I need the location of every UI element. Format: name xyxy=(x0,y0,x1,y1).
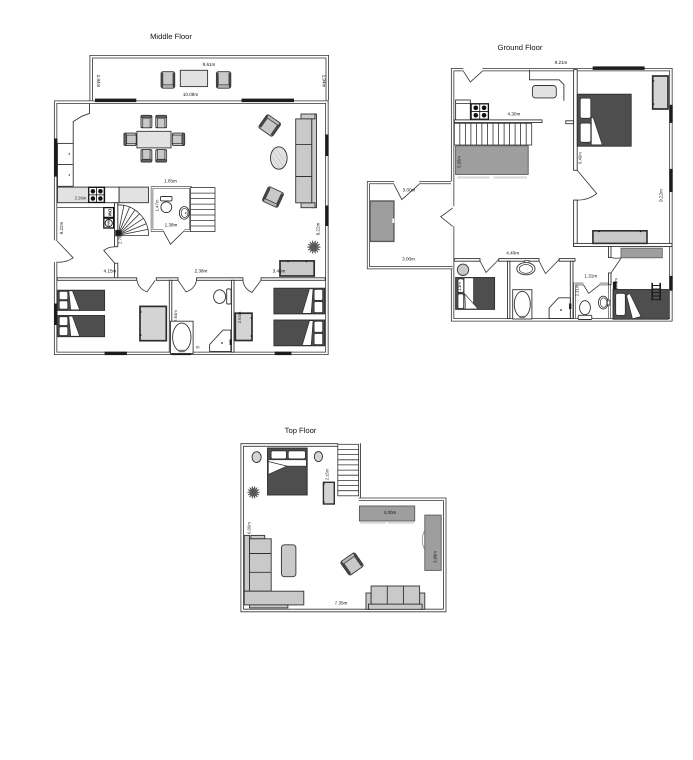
svg-text:m: m xyxy=(196,345,200,350)
svg-text:3.89m: 3.89m xyxy=(432,551,437,563)
svg-text:2.31m: 2.31m xyxy=(574,284,579,296)
svg-text:2.26m: 2.26m xyxy=(75,196,87,201)
svg-text:DW: DW xyxy=(108,209,113,216)
svg-text:7.35m: 7.35m xyxy=(335,600,348,605)
svg-text:9.22m: 9.22m xyxy=(59,221,64,234)
svg-text:6.00m: 6.00m xyxy=(246,522,251,534)
svg-text:9.22m: 9.22m xyxy=(315,222,320,235)
svg-text:8.21m: 8.21m xyxy=(555,60,568,65)
svg-text:3.46m: 3.46m xyxy=(273,269,286,274)
svg-text:5.95m: 5.95m xyxy=(457,156,462,168)
svg-text:6.40m: 6.40m xyxy=(578,152,583,164)
svg-text:4.30m: 4.30m xyxy=(508,112,521,117)
svg-text:3.00m: 3.00m xyxy=(403,188,416,193)
svg-text:9.22m: 9.22m xyxy=(658,189,663,202)
svg-text:4.15m: 4.15m xyxy=(104,269,117,274)
svg-text:1.31m: 1.31m xyxy=(584,274,597,279)
svg-text:1.65m: 1.65m xyxy=(164,179,177,184)
svg-text:4.00m: 4.00m xyxy=(384,510,397,515)
svg-text:2.64m: 2.64m xyxy=(237,311,242,323)
svg-text:1.70m: 1.70m xyxy=(613,278,618,290)
svg-text:1.94m: 1.94m xyxy=(96,75,101,88)
svg-text:Ground Floor: Ground Floor xyxy=(498,43,543,52)
svg-text:1.94m: 1.94m xyxy=(321,75,326,88)
svg-text:2.15m: 2.15m xyxy=(325,468,330,480)
svg-text:3.00m: 3.00m xyxy=(402,257,415,262)
svg-text:1.47m: 1.47m xyxy=(154,199,159,211)
svg-text:10.08m: 10.08m xyxy=(183,92,198,97)
svg-text:1.38m: 1.38m xyxy=(165,223,178,228)
svg-text:2.38m: 2.38m xyxy=(195,269,208,274)
svg-text:Top Floor: Top Floor xyxy=(285,426,317,435)
svg-text:4.40m: 4.40m xyxy=(506,250,519,255)
svg-text:WM: WM xyxy=(106,220,110,226)
svg-text:2.64m: 2.64m xyxy=(173,310,178,322)
svg-text:2.13m: 2.13m xyxy=(457,282,462,294)
svg-text:8.61m: 8.61m xyxy=(203,62,216,67)
svg-text:Middle Floor: Middle Floor xyxy=(150,32,192,41)
